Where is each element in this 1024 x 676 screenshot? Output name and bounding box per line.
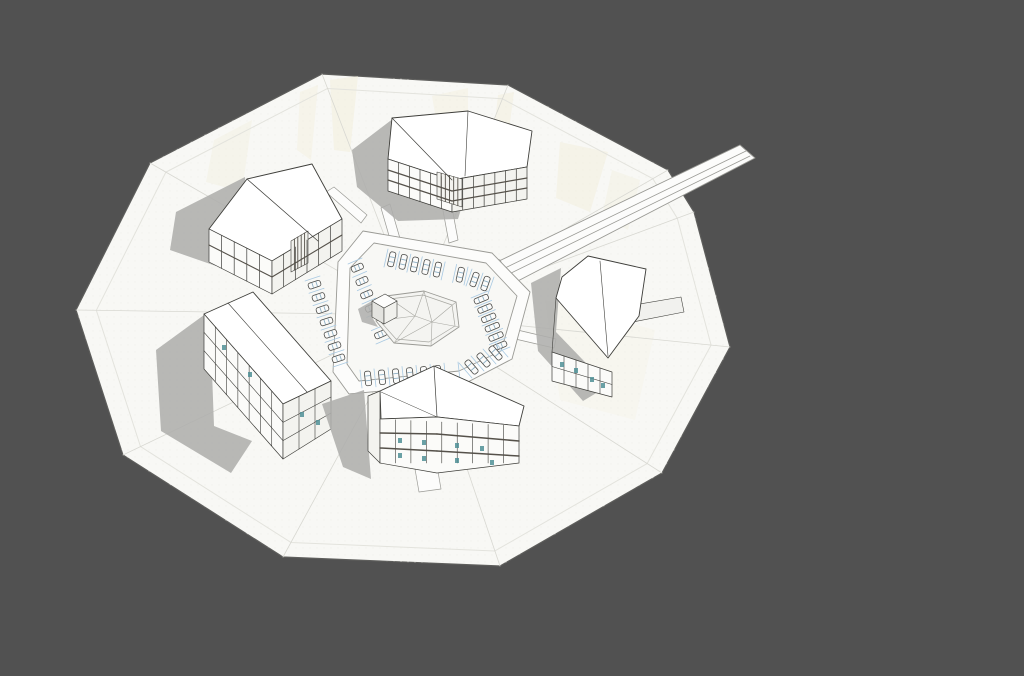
window-pane (455, 443, 459, 448)
window-pane (574, 368, 578, 373)
window-pane (248, 372, 252, 377)
parked-car (392, 369, 400, 384)
window-pane (398, 453, 402, 458)
window-pane (490, 460, 494, 465)
window-pane (601, 383, 605, 388)
window-pane (560, 362, 564, 367)
window-pane (455, 458, 459, 463)
window-pane (222, 345, 226, 350)
window-pane (422, 456, 426, 461)
window-pane (300, 412, 304, 417)
window-pane (590, 377, 594, 382)
window-pane (316, 420, 320, 425)
viewport-3d-model (0, 0, 1024, 676)
parked-car (378, 370, 386, 385)
parked-car (364, 371, 372, 386)
window-pane (480, 446, 484, 451)
window-pane (422, 440, 426, 445)
window-pane (398, 438, 402, 443)
site-model-canvas (0, 0, 1024, 676)
